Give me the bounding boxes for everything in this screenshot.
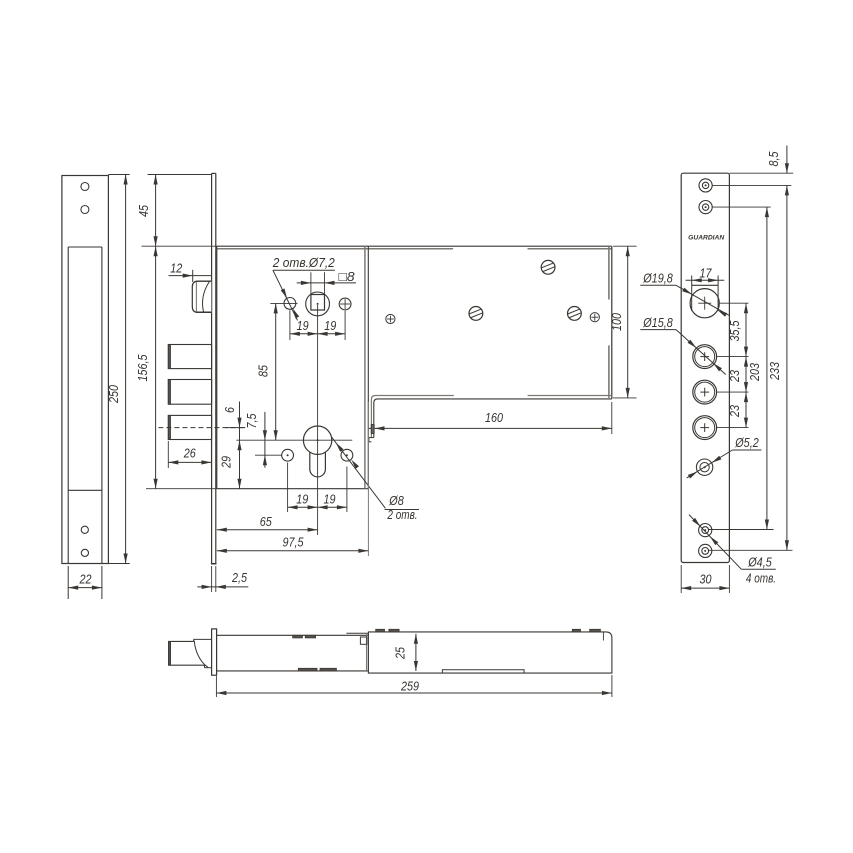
svg-text:35,5: 35,5 bbox=[727, 320, 742, 342]
svg-text:45: 45 bbox=[136, 204, 151, 217]
svg-text:23: 23 bbox=[727, 369, 742, 382]
svg-text:85: 85 bbox=[256, 364, 271, 377]
svg-text:26: 26 bbox=[183, 446, 196, 461]
svg-text:17: 17 bbox=[700, 266, 713, 281]
svg-text:100: 100 bbox=[609, 312, 624, 331]
svg-text:19: 19 bbox=[297, 318, 309, 333]
svg-text:23: 23 bbox=[727, 404, 742, 417]
svg-text:97,5: 97,5 bbox=[283, 535, 305, 550]
svg-text:156,5: 156,5 bbox=[135, 354, 150, 382]
svg-text:4 отв.: 4 отв. bbox=[746, 571, 776, 586]
svg-text:29: 29 bbox=[218, 456, 233, 469]
svg-text:22: 22 bbox=[79, 572, 92, 587]
svg-text:8,5: 8,5 bbox=[766, 151, 781, 167]
svg-text:□8: □8 bbox=[339, 269, 356, 284]
svg-text:160: 160 bbox=[485, 410, 504, 425]
svg-text:2 отв.Ø7,2: 2 отв.Ø7,2 bbox=[272, 255, 336, 270]
svg-text:Ø8: Ø8 bbox=[388, 493, 404, 508]
svg-text:12: 12 bbox=[170, 261, 183, 276]
svg-text:Ø5,2: Ø5,2 bbox=[734, 435, 759, 450]
svg-text:30: 30 bbox=[700, 572, 713, 587]
svg-text:203: 203 bbox=[747, 362, 762, 381]
svg-text:6: 6 bbox=[222, 406, 237, 413]
svg-text:Ø19,8: Ø19,8 bbox=[642, 271, 673, 286]
svg-text:250: 250 bbox=[106, 384, 121, 403]
svg-text:2 отв.: 2 отв. bbox=[387, 507, 418, 522]
svg-text:233: 233 bbox=[767, 361, 782, 380]
svg-text:Ø4,5: Ø4,5 bbox=[747, 555, 772, 570]
svg-text:19: 19 bbox=[296, 492, 308, 507]
svg-text:65: 65 bbox=[260, 514, 273, 529]
svg-text:19: 19 bbox=[324, 492, 336, 507]
svg-text:259: 259 bbox=[400, 678, 419, 693]
svg-text:GUARDIAN: GUARDIAN bbox=[688, 234, 725, 241]
svg-text:25: 25 bbox=[393, 646, 408, 659]
svg-text:19: 19 bbox=[324, 318, 336, 333]
svg-text:7,5: 7,5 bbox=[244, 413, 259, 429]
svg-text:2,5: 2,5 bbox=[231, 570, 247, 585]
svg-text:Ø15,8: Ø15,8 bbox=[642, 315, 673, 330]
